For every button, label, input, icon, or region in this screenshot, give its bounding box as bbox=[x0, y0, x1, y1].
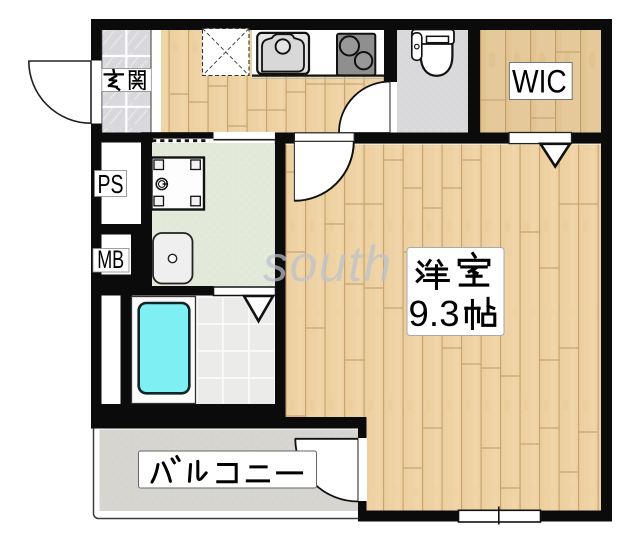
svg-text:MB: MB bbox=[97, 245, 124, 274]
svg-text:south: south bbox=[263, 236, 393, 292]
svg-text:9.3: 9.3 bbox=[409, 293, 460, 334]
svg-text:WIC: WIC bbox=[512, 65, 567, 100]
svg-text:PS: PS bbox=[98, 169, 124, 198]
